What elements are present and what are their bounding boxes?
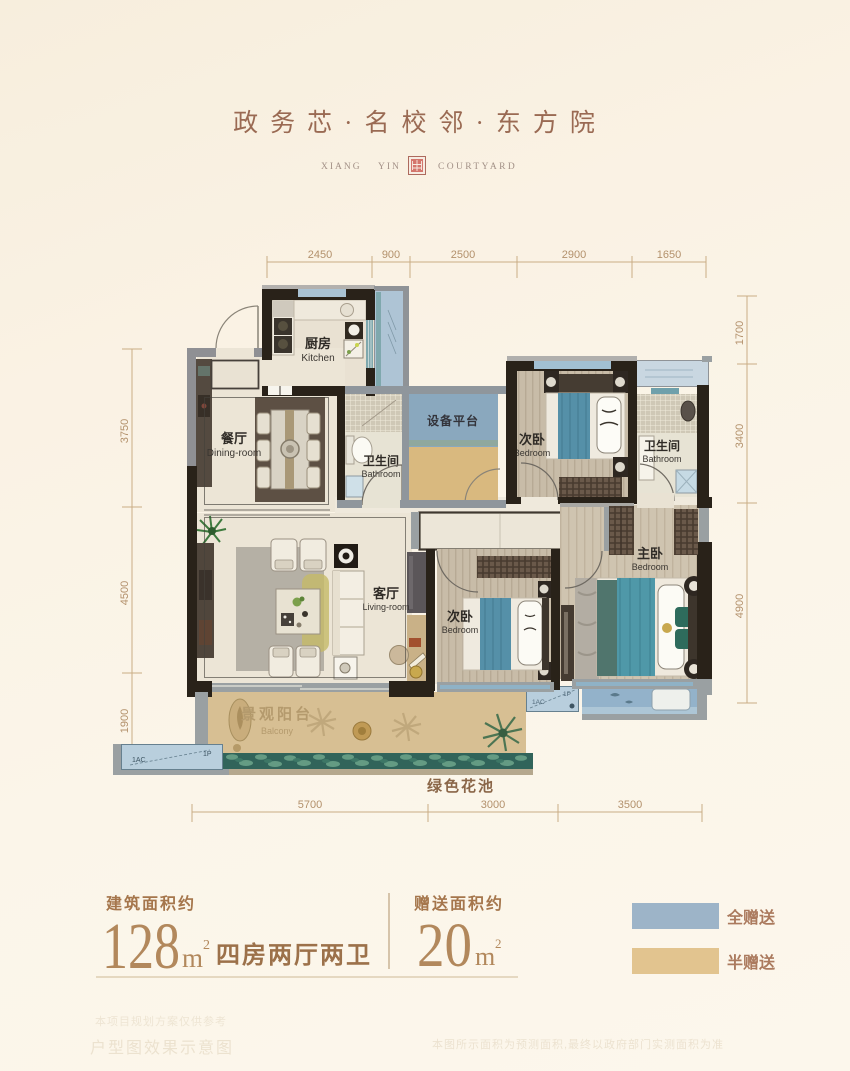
svg-text:COURTYARD: COURTYARD <box>438 162 517 172</box>
svg-text:政务芯·名校邻·东方院: 政务芯·名校邻·东方院 <box>233 109 607 137</box>
svg-text:3400: 3400 <box>734 424 746 448</box>
svg-text:卫生间: 卫生间 <box>644 438 680 453</box>
svg-text:四房两厅两卫: 四房两厅两卫 <box>216 941 372 969</box>
svg-text:900: 900 <box>382 249 400 261</box>
svg-text:Bedroom: Bedroom <box>632 562 669 572</box>
svg-text:绿色花池: 绿色花池 <box>427 777 495 795</box>
svg-text:20: 20 <box>417 912 472 980</box>
svg-text:全赠送: 全赠送 <box>726 908 776 927</box>
svg-text:主卧: 主卧 <box>637 546 663 561</box>
svg-text:Bedroom: Bedroom <box>514 448 551 458</box>
svg-text:Balcony: Balcony <box>261 726 294 736</box>
svg-text:户型图效果示意图: 户型图效果示意图 <box>90 1038 234 1057</box>
svg-text:次卧: 次卧 <box>519 432 545 447</box>
svg-text:2: 2 <box>495 936 502 951</box>
svg-text:4900: 4900 <box>734 594 746 618</box>
svg-text:景观阳台: 景观阳台 <box>241 705 313 723</box>
svg-text:1700: 1700 <box>734 321 746 345</box>
svg-text:厨房: 厨房 <box>305 336 331 351</box>
svg-text:设备平台: 设备平台 <box>427 413 479 428</box>
svg-text:4500: 4500 <box>119 581 131 605</box>
svg-text:3750: 3750 <box>119 419 131 443</box>
svg-text:1AC: 1AC <box>532 699 545 706</box>
svg-text:1P: 1P <box>203 751 212 758</box>
svg-text:2900: 2900 <box>562 249 586 261</box>
svg-text:1900: 1900 <box>119 709 131 733</box>
svg-text:本项目规划方案仅供参考: 本项目规划方案仅供参考 <box>95 1014 227 1028</box>
svg-text:XIANG: XIANG <box>321 162 362 172</box>
svg-text:Bathroom: Bathroom <box>642 454 681 464</box>
svg-text:Bedroom: Bedroom <box>442 625 479 635</box>
svg-text:YIN: YIN <box>378 162 401 172</box>
svg-text:客厅: 客厅 <box>373 586 399 601</box>
svg-text:1650: 1650 <box>657 249 681 261</box>
svg-text:2500: 2500 <box>451 249 475 261</box>
svg-text:128: 128 <box>102 910 180 983</box>
svg-text:次卧: 次卧 <box>447 609 473 624</box>
svg-text:Living-room: Living-room <box>362 602 409 612</box>
svg-text:3000: 3000 <box>481 799 505 811</box>
svg-text:Dining-room: Dining-room <box>207 448 261 459</box>
svg-text:5700: 5700 <box>298 799 322 811</box>
svg-text:餐厅: 餐厅 <box>220 431 247 446</box>
svg-text:m: m <box>182 943 203 973</box>
svg-text:m: m <box>475 942 495 971</box>
svg-text:赠送面积约: 赠送面积约 <box>414 894 504 913</box>
svg-text:1AC: 1AC <box>132 757 146 764</box>
svg-text:2450: 2450 <box>308 249 332 261</box>
svg-text:3500: 3500 <box>618 799 642 811</box>
svg-text:本图所示面积为预测面积,最终以政府部门实测面积为准: 本图所示面积为预测面积,最终以政府部门实测面积为准 <box>432 1037 724 1051</box>
svg-text:1P: 1P <box>563 691 571 698</box>
svg-text:Kitchen: Kitchen <box>301 353 334 364</box>
svg-text:2: 2 <box>203 938 210 953</box>
svg-text:半赠送: 半赠送 <box>727 953 776 972</box>
